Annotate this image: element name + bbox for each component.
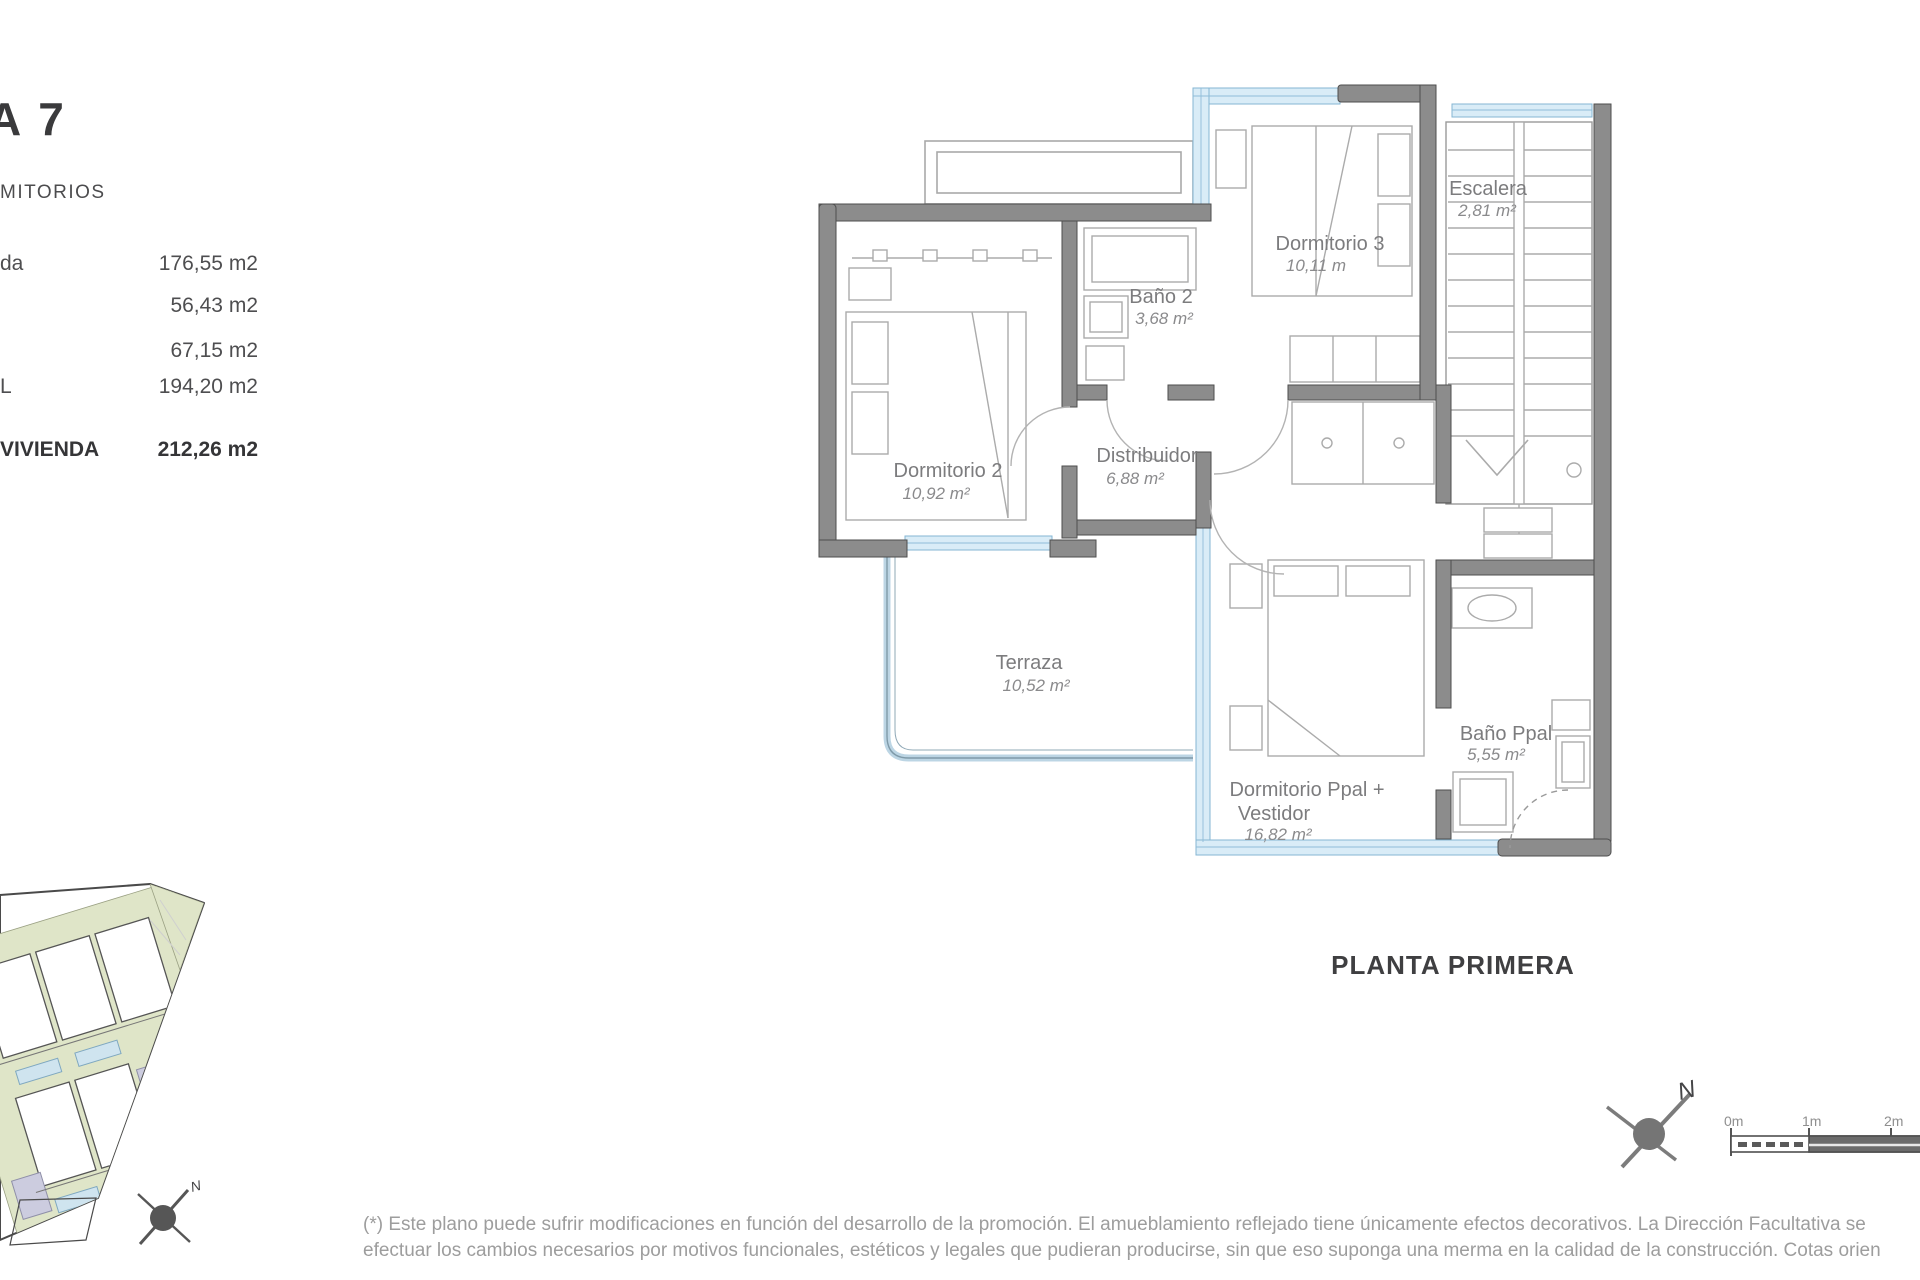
room-area-escalera: 2,81 m² <box>1457 201 1517 220</box>
room-label-bano-ppal: Baño Ppal <box>1460 723 1552 745</box>
site-plan: N <box>0 881 262 1251</box>
scale-label-0m: 0m <box>1724 1113 1743 1129</box>
scale-label-2m: 2m <box>1884 1113 1903 1129</box>
site-north-label: N <box>189 1177 204 1195</box>
footnote-line-1: (*) Este plano puede sufrir modificacion… <box>363 1212 1920 1238</box>
nightstand <box>849 268 891 300</box>
room-area-bano-2: 3,68 m² <box>1135 309 1194 328</box>
window-ppal-bottom <box>1196 840 1501 855</box>
room-area-bano-ppal: 5,55 m² <box>1467 745 1526 764</box>
roof-outline <box>925 141 1193 204</box>
room-label-dormitorio-3: Dormitorio 3 <box>1276 233 1385 255</box>
room-area-dormitorio-2: 10,92 m² <box>902 484 970 503</box>
room-area-dormitorio-3: 10,11 m <box>1286 256 1346 275</box>
site-north-compass: N <box>138 1177 203 1244</box>
room-area-terraza: 10,52 m² <box>1002 676 1070 695</box>
footnote: (*) Este plano puede sufrir modificacion… <box>363 1212 1920 1264</box>
room-area-dormitorio-ppal: 16,82 m² <box>1244 825 1312 844</box>
scale-bar: 0m 1m 2m <box>1724 1113 1920 1156</box>
room-label-escalera: Escalera <box>1449 178 1528 200</box>
plan-title: PLANTA PRIMERA <box>1318 950 1588 981</box>
compass-hub <box>1633 1118 1665 1150</box>
room-label-vestidor: Vestidor <box>1238 803 1311 825</box>
room-label-dormitorio-ppal: Dormitorio Ppal + <box>1229 779 1384 801</box>
room-area-distribuidor: 6,88 m² <box>1106 469 1165 488</box>
room-label-terraza: Terraza <box>996 652 1064 674</box>
floorplan-svg: Dormitorio 2 10,92 m² Baño 2 3,68 m² Dor… <box>0 0 1920 1280</box>
footnote-line-2: efectuar los cambios necesarios por moti… <box>363 1238 1920 1264</box>
room-label-distribuidor: Distribuidor <box>1096 445 1197 467</box>
page: A 7 MITORIOS da 176,55 m2 56,43 m2 67,15… <box>0 0 1920 1280</box>
window-escalera <box>1452 104 1592 117</box>
door-dorm3 <box>1214 400 1288 474</box>
north-compass: N <box>1607 1075 1699 1167</box>
room-label-bano-2: Baño 2 <box>1129 286 1192 308</box>
north-label: N <box>1675 1075 1699 1106</box>
room-label-dormitorio-2: Dormitorio 2 <box>894 460 1003 482</box>
scale-label-1m: 1m <box>1802 1113 1821 1129</box>
